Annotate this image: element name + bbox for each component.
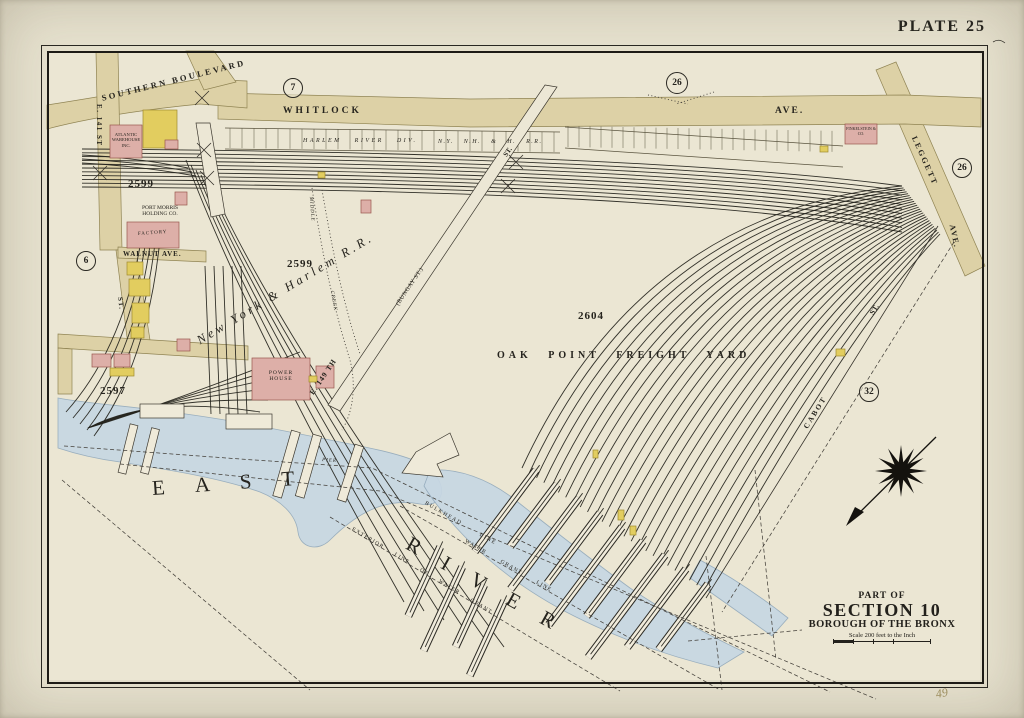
- bldg-label-port-morris: PORT MORRIS HOLDING CO.: [130, 205, 190, 218]
- rr-label-nynh: N.Y. N.H. & H. R.R.: [438, 139, 542, 146]
- yellow-tiny-5: [630, 526, 636, 535]
- bldg-label-atlantic: ATLANTIC WAREHOUSE INC.: [109, 132, 143, 148]
- badge-plate-7: 7: [283, 78, 303, 98]
- pink-building-small-5: [361, 200, 371, 213]
- pink-building-small-2: [92, 354, 111, 367]
- street-label-st-lower: ST.: [116, 297, 126, 311]
- badge-plate-32: 32: [859, 382, 879, 402]
- block-number-2599-mid: 2599: [287, 258, 313, 271]
- yellow-building-6: [110, 368, 134, 376]
- bldg-label-power-house: POWER HOUSE: [264, 370, 298, 383]
- yellow-tiny-6: [593, 450, 598, 458]
- rr-label-harlem-div: HARLEM RIVER DIV.: [303, 138, 418, 145]
- yellow-building-2: [127, 262, 143, 275]
- margin-mark: [993, 40, 1005, 43]
- block-number-2599-west: 2599: [128, 178, 154, 191]
- title-borough: BOROUGH OF THE BRONX: [800, 619, 964, 631]
- pencil-annotation: 49: [935, 686, 949, 702]
- yellow-building-3: [129, 279, 150, 296]
- bldg-label-finkelstein: FINKELSTEIN & CO.: [845, 127, 877, 136]
- street-label-walnut: WALNUT AVE.: [123, 250, 182, 258]
- street-label-whitlock: WHITLOCK: [283, 106, 362, 117]
- badge-plate-6: 6: [76, 251, 96, 271]
- yellow-building-4: [132, 303, 149, 323]
- yellow-building-5: [131, 327, 144, 338]
- dock-2: [226, 414, 272, 429]
- pink-building-small-4: [177, 339, 190, 351]
- title-scale: Scale 200 feet to the Inch: [800, 632, 964, 639]
- title-block: PART OF SECTION 10 BOROUGH OF THE BRONX …: [800, 591, 964, 646]
- pink-building-small-1: [175, 192, 187, 205]
- yellow-tiny-3: [836, 349, 845, 356]
- street-label-e141st: E. 141 ST: [95, 104, 103, 146]
- yellow-tiny-2: [318, 172, 325, 178]
- dock-1: [140, 404, 184, 418]
- pink-annex: [165, 140, 178, 149]
- block-number-2604: 2604: [578, 310, 604, 323]
- badge-plate-26-top: 26: [666, 72, 688, 94]
- dock-street-stub: [58, 348, 72, 394]
- feature-label-pier: PIER: [322, 458, 337, 465]
- scale-bar: [833, 641, 931, 646]
- street-label-whitlock-ave: AVE.: [775, 106, 804, 117]
- title-section: SECTION 10: [800, 601, 964, 619]
- block-number-2597: 2597: [100, 385, 126, 398]
- yellow-tiny-1: [820, 146, 828, 152]
- plate-number: PLATE 25: [838, 18, 986, 36]
- badge-plate-26-right: 26: [952, 158, 972, 178]
- feature-label-oak-point-yard: OAK POINT FREIGHT YARD: [497, 350, 750, 362]
- pink-building-small-3: [114, 354, 130, 367]
- atlas-plate-page: PLATE 25 SOUTHERN BOULEVARD WHITLOCK AVE…: [0, 0, 1024, 718]
- yellow-tiny-4: [618, 510, 624, 520]
